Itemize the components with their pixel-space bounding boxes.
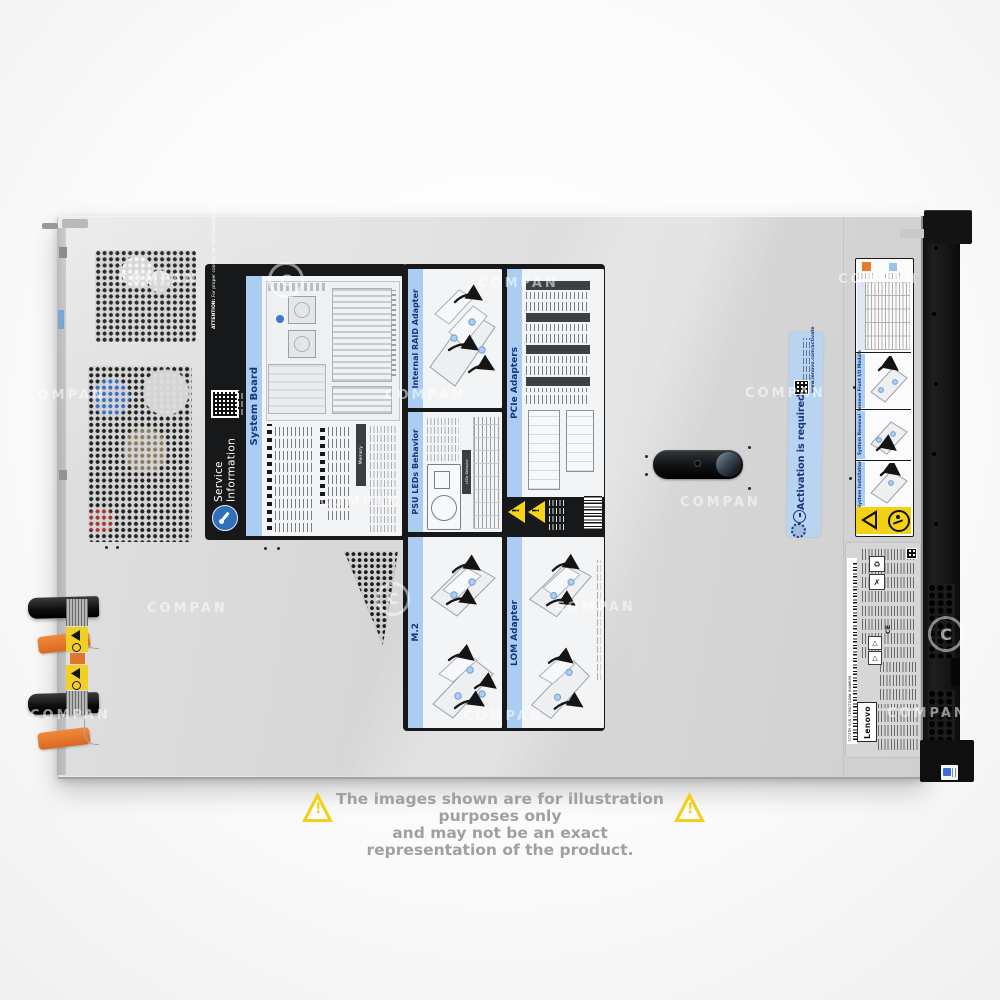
activation-url: www.lenovo.com/activate — [811, 337, 820, 393]
pin-row-diagram — [391, 290, 396, 376]
handling-section3-title: System Installation — [858, 460, 863, 508]
label-barcode — [584, 496, 602, 530]
rack-ear-label-lines — [952, 768, 956, 777]
disclaimer-exclamation: ! — [315, 801, 321, 817]
handling-section3-header: System Installation — [856, 462, 865, 506]
chassis-top-tab — [62, 219, 88, 228]
clock-hand — [799, 513, 801, 517]
memory-subheader-text: Memory — [359, 446, 364, 464]
lift-weight-icon — [888, 510, 910, 532]
touchpoint-orange-swatch — [862, 262, 871, 271]
psu-warning-label — [66, 627, 88, 652]
panel-lom-adapter-header: LOM Adapter — [507, 537, 522, 728]
touchpoint-blue-swatch — [889, 263, 897, 271]
psu-outline-diagram — [427, 464, 461, 530]
memory-subheader: Memory — [356, 424, 366, 486]
pcie-kit-lines — [526, 324, 590, 343]
attention-note: ATTENTION: For proper cooling, do not le… — [212, 269, 242, 329]
lenovo-logo-text: Lenovo — [863, 706, 872, 739]
disclaimer-line1: The images shown are for illustration pu… — [330, 791, 670, 825]
ce-mark: CE — [884, 620, 894, 634]
memory-note-lines — [370, 424, 398, 532]
rail-latch-bump — [951, 658, 960, 686]
rack-ear-top — [924, 210, 972, 244]
screw-hole — [748, 487, 751, 490]
panel-m2-title: M.2 — [411, 623, 421, 642]
label-fine-print — [549, 498, 565, 530]
latch-thumb-cap — [716, 452, 741, 477]
pcie-kit-title-bar — [526, 345, 590, 354]
psu-led-table — [473, 417, 500, 529]
watermark-text: COMPAN — [745, 386, 826, 401]
handling-illustration — [867, 356, 910, 406]
pcie-kit-lines — [526, 388, 590, 404]
watermark-text: COMPAN — [555, 600, 636, 615]
small-warning-triangle — [71, 668, 80, 679]
cpu-socket-diagram — [288, 296, 316, 324]
attention-body: For proper cooling, do not leave top cov… — [212, 52, 217, 297]
watermark-text: COMPAN — [118, 272, 199, 287]
handling-separator — [856, 460, 911, 461]
panel-lom-adapter-title: LOM Adapter — [510, 600, 520, 666]
panel-system-board-header: System Board — [246, 276, 262, 536]
panel-pcie-adapters-header: PCIe Adapters — [507, 269, 522, 497]
handling-section2-header: System Removal — [856, 411, 865, 459]
service-brand-icon — [212, 505, 238, 531]
cpu-socket-diagram — [288, 330, 316, 358]
cert-triangle-icon: △ — [868, 636, 882, 650]
triangle-glyph: △ — [872, 639, 877, 647]
watermark-text: COMPAN — [147, 601, 228, 616]
service-tools-icon-dot — [219, 519, 224, 524]
legend-text-lines — [275, 424, 315, 532]
small-warning-triangle — [71, 630, 80, 641]
qr-code — [211, 390, 239, 418]
screw-hole — [116, 546, 119, 549]
watermark-text: COMPAN — [385, 388, 466, 403]
leds-behavior-text: LEDs Behavior — [465, 459, 469, 484]
rail-hole — [934, 382, 938, 386]
serial-number-text: 7Z73TM S/N 7Z00CTO1WW B44W698 — [847, 560, 852, 742]
panel-pcie-adapters-title: PCIe Adapters — [510, 347, 520, 419]
chassis-top-tab — [42, 223, 58, 229]
screw-hole — [277, 547, 280, 550]
gear-icon — [791, 523, 806, 538]
handling-separator — [856, 409, 911, 410]
rear-slot — [59, 470, 67, 480]
lift-weight-dot — [896, 515, 900, 519]
regulatory-fine-print — [880, 662, 916, 700]
panel-psu-leds-title: PSU LEDs Behavior — [411, 429, 420, 515]
riser-outline-diagram — [566, 410, 594, 472]
disclaimer-exclamation: ! — [687, 801, 693, 817]
psu-orange-tag — [70, 653, 85, 664]
watermark-logo-letter: C — [940, 625, 952, 644]
chassis-seam — [843, 218, 844, 774]
watermark-text: COMPAN — [680, 495, 761, 510]
watermark-logo: C — [268, 262, 304, 298]
watermark-logo: C — [928, 616, 964, 652]
cpu-circle — [294, 302, 310, 318]
screw-hole — [105, 546, 108, 549]
recycle-glyph: ♻ — [873, 560, 880, 569]
handling-illustration — [867, 412, 910, 458]
pcie-kit-lines — [526, 356, 590, 375]
qr-caption-lines — [238, 391, 243, 415]
psu-handle-bar — [28, 596, 100, 619]
watermark-text: COMPAN — [887, 706, 968, 721]
disclaimer-warning-triangle: ! — [302, 792, 333, 822]
watermark-logo-letter: C — [387, 590, 398, 608]
rack-ear-label-glyph — [943, 768, 951, 776]
watermark-text: COMPAN — [30, 708, 111, 723]
small-warning-circle — [72, 681, 81, 690]
weee-bin-icon: ✗ — [869, 574, 885, 590]
legend-key-squares — [267, 424, 272, 530]
watermark-text: COMPAN — [838, 272, 919, 287]
handling-section2-title: System Removal — [858, 414, 863, 455]
clock-icon — [793, 510, 806, 523]
battery-diagram — [276, 315, 284, 323]
handling-section1-header: Remove Front I/O Module — [856, 354, 865, 408]
activation-title: Activation is required — [796, 398, 810, 510]
screw-hole — [645, 473, 648, 476]
cpu-circle — [294, 336, 310, 352]
rail-hole — [934, 246, 938, 250]
recycle-mark-icon: ♻ — [869, 556, 885, 572]
handling-separator — [856, 352, 911, 353]
handling-section1-title: Remove Front I/O Module — [858, 350, 863, 413]
touchpoint-table-headercol — [857, 282, 866, 350]
product-photo: ATTENTION: For proper cooling, do not le… — [0, 0, 1000, 1000]
service-title-line1: Service — [213, 461, 225, 502]
rail-hole — [932, 452, 936, 456]
rack-ear-label — [941, 765, 958, 780]
rear-vent-grille — [95, 250, 196, 342]
watermark-text: COMPAN — [463, 709, 544, 724]
disclaimer-text: The images shown are for illustration pu… — [330, 791, 670, 859]
rail-step — [900, 229, 924, 238]
m2-install-illustration — [425, 540, 500, 630]
rear-blue-tab — [58, 310, 64, 329]
watermark-logo: C — [376, 582, 410, 616]
psu-fan-circle — [431, 495, 457, 521]
lom-note-line — [597, 560, 601, 680]
cert-triangle-icon: △ — [868, 651, 882, 665]
lom-install-illustration — [524, 540, 596, 630]
activation-fine-print — [803, 338, 810, 380]
psu-socket — [434, 471, 450, 489]
riser-outline-diagram — [528, 410, 560, 490]
psu-warning-label — [66, 665, 88, 690]
screw-hole — [264, 547, 267, 550]
cross-glyph: ✗ — [874, 578, 881, 587]
watermark-text: COMPAN — [25, 388, 106, 403]
service-title-line2: Information — [226, 438, 238, 502]
lift-weight-bar — [893, 519, 903, 524]
dimm-bank-diagram — [332, 386, 392, 414]
pcie-kit-lines — [526, 292, 590, 311]
screw-hole — [748, 446, 751, 449]
psu-spec-label — [66, 599, 88, 626]
watermark-text: COMPAN — [478, 276, 559, 291]
psu-legend-lines — [427, 417, 459, 461]
raid-install-illustration — [425, 272, 500, 405]
disclaimer-line2: and may not be an exact representation o… — [330, 825, 670, 859]
triangle-glyph: △ — [872, 654, 877, 662]
panel-m2-header: M.2 — [408, 537, 423, 728]
handling-illustration — [867, 463, 910, 505]
panel-psu-leds-header: PSU LEDs Behavior — [408, 412, 423, 532]
latch-screw — [695, 461, 700, 466]
rear-slot — [59, 247, 67, 258]
regulatory-qr-code — [906, 548, 917, 559]
screw-hole — [849, 477, 852, 480]
pcie-kit-title-bar — [526, 313, 590, 322]
rail-hole — [932, 312, 936, 316]
legend-key-squares — [320, 424, 325, 504]
panel-internal-raid-title: Internal RAID Adapter — [411, 289, 420, 388]
watermark-logo-letter: C — [280, 271, 292, 290]
service-label-title: Service Information — [213, 432, 240, 502]
lenovo-logo-box: Lenovo — [857, 702, 877, 742]
rail-hole — [934, 522, 938, 526]
disclaimer-warning-triangle: ! — [674, 792, 705, 822]
panel-system-board-title: System Board — [249, 367, 260, 445]
small-warning-circle — [72, 643, 81, 652]
pcie-kit-title-bar — [526, 377, 590, 386]
dimm-bank-diagram — [332, 288, 392, 382]
attention-title: ATTENTION: — [212, 299, 217, 329]
screw-hole — [645, 455, 648, 458]
watermark-text: COMPAN — [320, 495, 401, 510]
leds-behavior-subheader: LEDs Behavior — [462, 450, 471, 494]
io-block-diagram — [268, 364, 326, 414]
